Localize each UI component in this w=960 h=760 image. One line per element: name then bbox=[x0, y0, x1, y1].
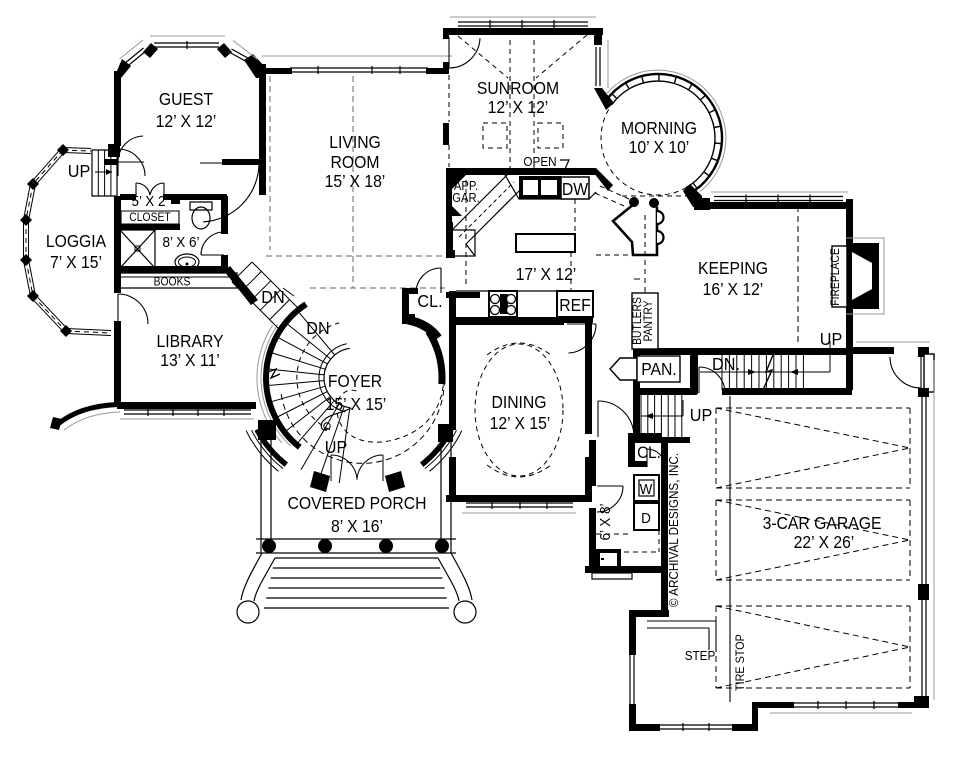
svg-text:DW: DW bbox=[562, 179, 588, 199]
svg-text:22’ X 26’: 22’ X 26’ bbox=[794, 532, 855, 552]
svg-text:8’ X 16’: 8’ X 16’ bbox=[331, 516, 383, 536]
svg-text:10’ X 10’: 10’ X 10’ bbox=[629, 137, 690, 157]
svg-text:17’ X 12’: 17’ X 12’ bbox=[516, 264, 577, 284]
svg-text:12’ X 15’: 12’ X 15’ bbox=[490, 413, 551, 433]
svg-text:SUNROOM: SUNROOM bbox=[477, 78, 559, 98]
svg-text:UP: UP bbox=[68, 161, 90, 181]
svg-text:PANTRY: PANTRY bbox=[643, 300, 656, 342]
svg-text:UP: UP bbox=[820, 329, 842, 349]
svg-text:MORNING: MORNING bbox=[621, 118, 697, 138]
svg-text:CL.: CL. bbox=[417, 291, 442, 311]
svg-text:W: W bbox=[640, 481, 653, 498]
svg-text:FOYER: FOYER bbox=[328, 371, 382, 391]
svg-text:6’ X 8’: 6’ X 8’ bbox=[597, 504, 614, 541]
svg-text:PAN.: PAN. bbox=[641, 359, 677, 379]
svg-text:LIBRARY: LIBRARY bbox=[156, 331, 223, 351]
svg-text:LIVING: LIVING bbox=[329, 132, 381, 152]
svg-text:COVERED PORCH: COVERED PORCH bbox=[288, 493, 427, 513]
svg-text:REF: REF bbox=[559, 295, 590, 315]
svg-text:DN.: DN. bbox=[712, 354, 740, 374]
svg-text:3-CAR GARAGE: 3-CAR GARAGE bbox=[763, 513, 882, 533]
svg-text:DN: DN bbox=[306, 318, 329, 338]
svg-text:12’ X 12’: 12’ X 12’ bbox=[156, 111, 217, 131]
svg-text:D: D bbox=[641, 510, 651, 527]
svg-text:13’ X 11’: 13’ X 11’ bbox=[160, 350, 219, 370]
svg-text:FIREPLACE: FIREPLACE bbox=[830, 248, 843, 306]
svg-text:16’ X 12’: 16’ X 12’ bbox=[703, 279, 764, 299]
svg-text:CL.: CL. bbox=[637, 443, 661, 462]
svg-text:15’ X 15’: 15’ X 15’ bbox=[326, 394, 387, 414]
svg-text:GUEST: GUEST bbox=[159, 89, 213, 109]
svg-text:BOOKS: BOOKS bbox=[154, 276, 191, 289]
svg-text:CLOSET: CLOSET bbox=[129, 212, 171, 225]
svg-text:8’ X 6’: 8’ X 6’ bbox=[163, 234, 200, 251]
svg-text:STEP: STEP bbox=[685, 648, 716, 663]
svg-text:KEEPING: KEEPING bbox=[698, 258, 768, 278]
svg-text:DN: DN bbox=[261, 287, 284, 307]
svg-text:ROOM: ROOM bbox=[331, 152, 380, 172]
svg-text:LOGGIA: LOGGIA bbox=[46, 231, 107, 251]
svg-text:OPEN: OPEN bbox=[523, 154, 556, 169]
svg-text:© ARCHIVAL DESIGNS, INC.: © ARCHIVAL DESIGNS, INC. bbox=[666, 453, 681, 607]
svg-text:5’ X 2’: 5’ X 2’ bbox=[132, 193, 169, 210]
svg-text:UP: UP bbox=[325, 437, 347, 457]
svg-text:UP: UP bbox=[690, 405, 712, 425]
svg-text:15’ X 18’: 15’ X 18’ bbox=[325, 171, 386, 191]
svg-text:DINING: DINING bbox=[491, 392, 546, 412]
svg-text:12’ X 12’: 12’ X 12’ bbox=[488, 97, 549, 117]
svg-text:7’ X 15’: 7’ X 15’ bbox=[50, 252, 102, 272]
